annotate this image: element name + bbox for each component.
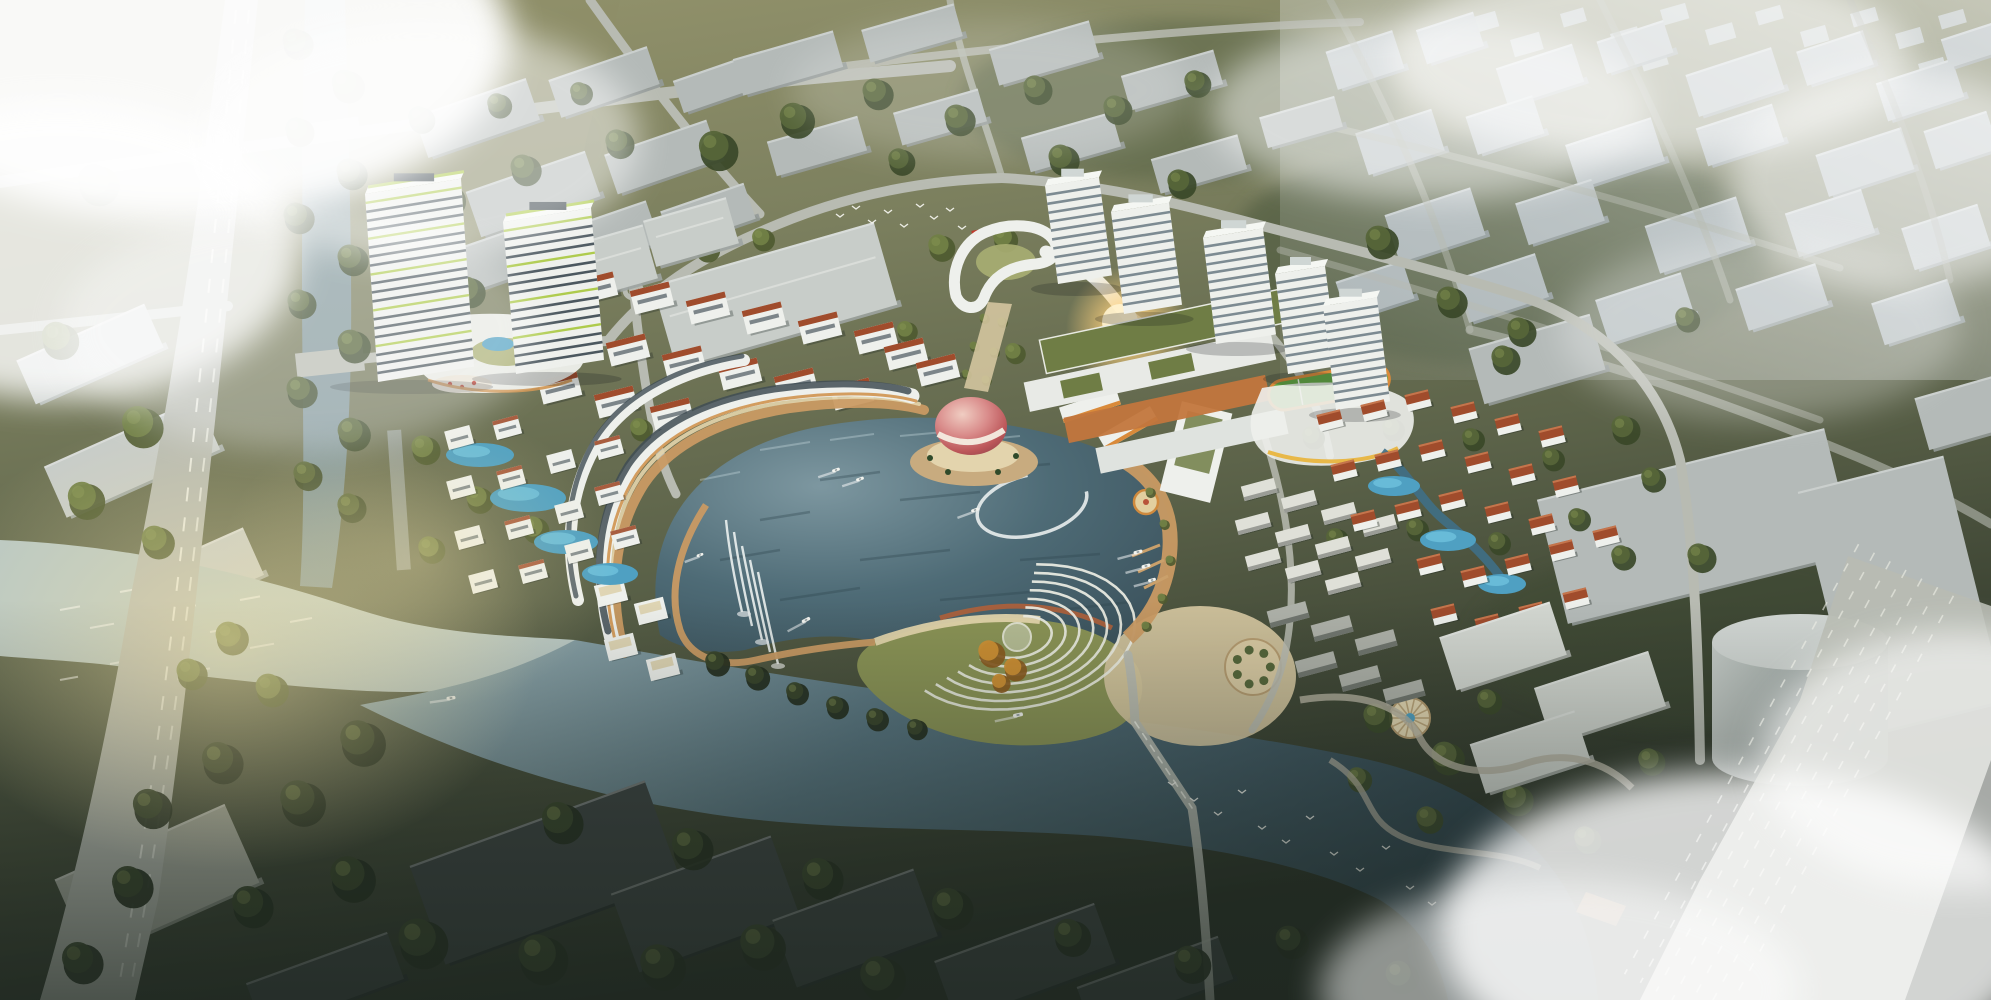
red-dome xyxy=(935,397,1007,455)
palm xyxy=(945,469,951,475)
masterplan-rendering xyxy=(0,0,1991,1000)
palm xyxy=(995,469,1001,475)
warm-sunlight xyxy=(220,410,620,710)
fog-cloud xyxy=(1560,240,1960,420)
fog-cloud xyxy=(60,210,540,450)
fog-cloud xyxy=(790,20,1190,160)
mosaic-center xyxy=(1143,499,1149,505)
villa-pool xyxy=(1368,476,1420,496)
palm xyxy=(927,455,933,461)
aerial-rendering-stage xyxy=(0,0,1991,1000)
palm xyxy=(1013,453,1019,459)
villa-pool xyxy=(1420,529,1476,551)
